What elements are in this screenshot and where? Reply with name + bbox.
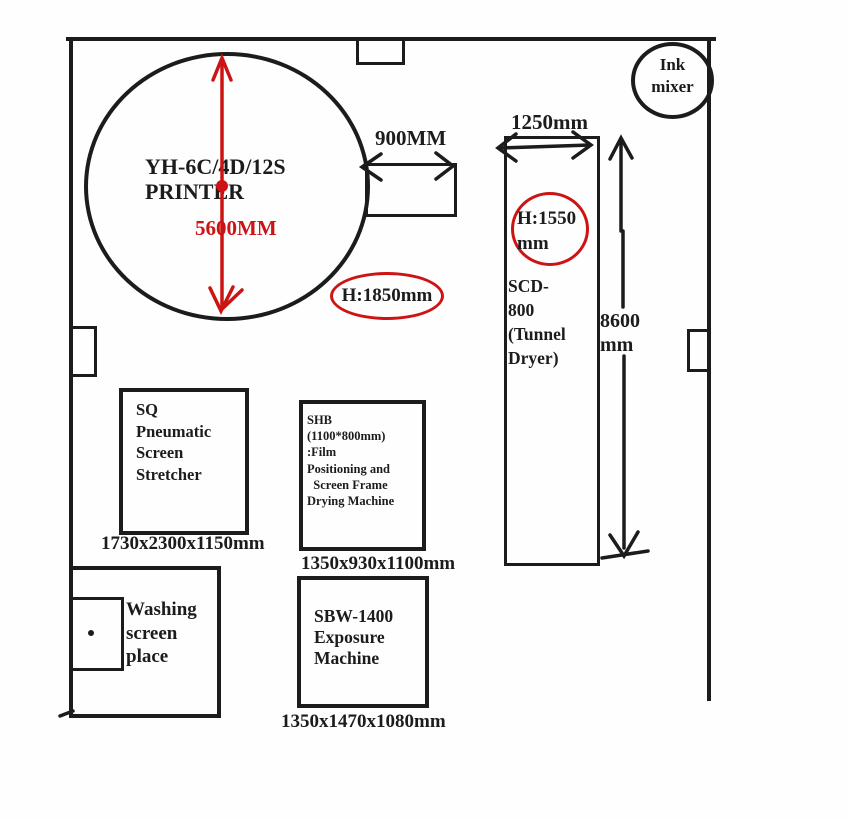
exposure-label: SBW-1400 Exposure Machine — [314, 606, 393, 669]
right-wall-niche — [687, 329, 710, 372]
ink-mixer-circle: Ink mixer — [631, 42, 714, 119]
washing-sink-box — [73, 597, 124, 671]
film-drying-label: SHB (1100*800mm) :Film Positioning and S… — [307, 412, 394, 509]
printer-height-label: H:1850mm — [342, 285, 433, 307]
screen-stretcher-dims-label: 1730x2300x1150mm — [101, 533, 265, 555]
left-wall-niche — [73, 326, 97, 377]
floor-plan-canvas: YH-6C/4D/12S PRINTER 5600MM 900MM H:1850… — [0, 0, 850, 820]
printer-diameter-label: 5600MM — [195, 216, 277, 241]
ink-mixer-label: Ink mixer — [635, 54, 710, 98]
tunnel-dryer-label: SCD- 800 (Tunnel Dryer) — [508, 274, 566, 370]
screen-stretcher-label: SQ Pneumatic Screen Stretcher — [136, 399, 211, 485]
printer-height-badge: H:1850mm — [330, 272, 444, 320]
tunnel-length-label: 8600 mm — [600, 309, 640, 357]
tunnel-width-label: 1250mm — [511, 110, 588, 135]
washing-label: Washing screen place — [126, 598, 197, 669]
washing-sink-dot — [88, 630, 94, 636]
top-wall-opening — [356, 41, 405, 65]
exposure-dims-label: 1350x1470x1080mm — [281, 711, 446, 733]
printer-label: YH-6C/4D/12S PRINTER — [145, 154, 286, 204]
outfeed-table — [365, 163, 457, 217]
film-drying-dims-label: 1350x930x1100mm — [301, 553, 455, 575]
outfeed-width-label: 900MM — [375, 126, 446, 151]
tunnel-height-label: H:1550 mm — [517, 206, 576, 256]
